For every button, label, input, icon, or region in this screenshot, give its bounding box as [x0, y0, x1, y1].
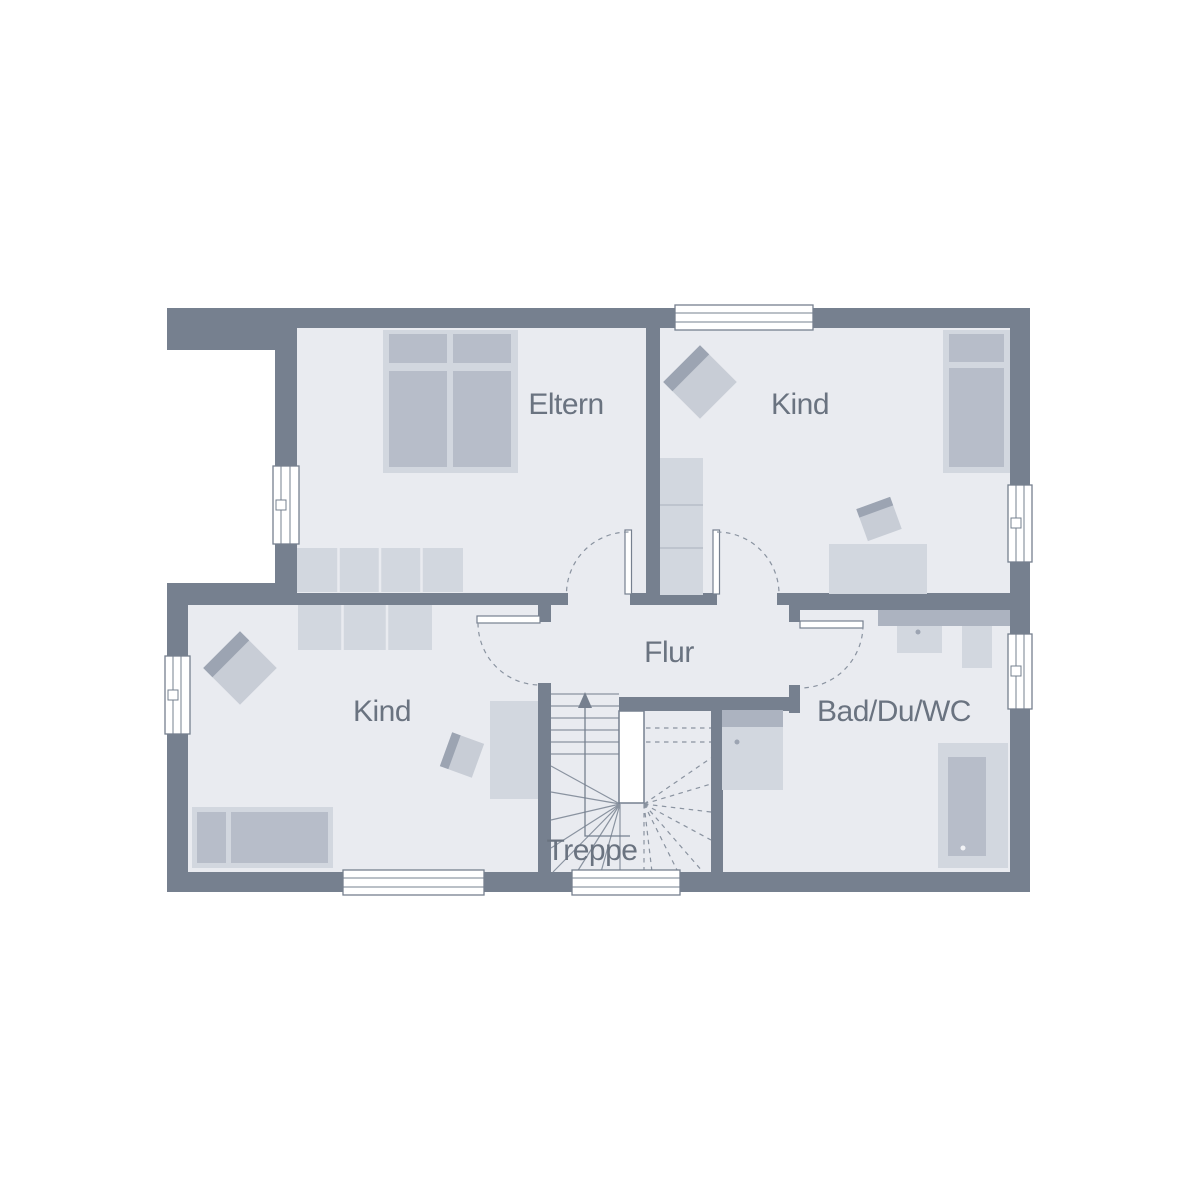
room-label-treppe: Treppe — [547, 834, 638, 867]
window-top — [675, 305, 813, 330]
floorplan-canvas: Eltern Kind Kind Flur Bad/Du/WC Treppe — [0, 0, 1200, 1200]
shower-edge — [722, 710, 783, 727]
bed-pillow — [389, 334, 447, 363]
window-frame — [572, 870, 680, 895]
bathtub-basin — [948, 757, 986, 856]
kind-top-desk — [829, 544, 927, 594]
kind-top-shelf — [660, 458, 703, 595]
shelf-body — [660, 458, 703, 595]
bathtub-drain-dot — [961, 846, 966, 851]
window-center-mark — [1011, 666, 1021, 676]
kind-bottom-wardrobe — [298, 605, 432, 650]
room-label-kind-top: Kind — [771, 388, 829, 421]
door-leaf — [713, 530, 720, 594]
stair-void — [619, 711, 644, 803]
window-right-kind-top — [1008, 485, 1032, 562]
bed-mattress — [231, 812, 328, 863]
window-frame — [675, 305, 813, 330]
eltern-double-bed — [383, 330, 518, 473]
window-center-mark — [276, 500, 286, 510]
bed-mattress — [453, 371, 511, 467]
shower — [722, 710, 783, 790]
bed-mattress — [949, 368, 1004, 467]
window-center-mark — [168, 690, 178, 700]
bed-pillow — [949, 334, 1004, 362]
window-right-bad — [1008, 634, 1032, 709]
door-leaf — [625, 530, 632, 594]
window-center-mark — [1011, 518, 1021, 528]
room-label-kind-bottom: Kind — [353, 695, 411, 728]
room-label-eltern: Eltern — [528, 388, 603, 421]
bed-mattress — [389, 371, 447, 467]
washbasin-faucet-dot — [916, 630, 921, 635]
kind-top-bed — [943, 330, 1010, 473]
window-frame — [343, 870, 484, 895]
room-label-flur: Flur — [644, 636, 694, 669]
door-leaf — [800, 621, 863, 628]
window-bottom-kind — [343, 870, 484, 895]
window-left-kind-bottom — [165, 656, 190, 734]
wardrobe-body — [298, 605, 432, 650]
shower-drain-dot — [735, 740, 740, 745]
window-bottom-treppe — [572, 870, 680, 895]
bed-pillow — [453, 334, 511, 363]
door-leaf — [477, 616, 540, 623]
room-label-bad: Bad/Du/WC — [817, 695, 971, 728]
window-left-eltern — [273, 466, 299, 544]
bed-pillow — [197, 812, 226, 863]
kind-bottom-bed — [192, 807, 333, 868]
kind-bottom-desk — [490, 701, 538, 799]
eltern-wardrobe — [297, 548, 463, 592]
vanity-counter — [878, 610, 1010, 626]
toilet — [962, 626, 992, 668]
bathtub — [938, 743, 1008, 868]
floorplan-drawing: Eltern Kind Kind Flur Bad/Du/WC Treppe — [0, 0, 1200, 1200]
